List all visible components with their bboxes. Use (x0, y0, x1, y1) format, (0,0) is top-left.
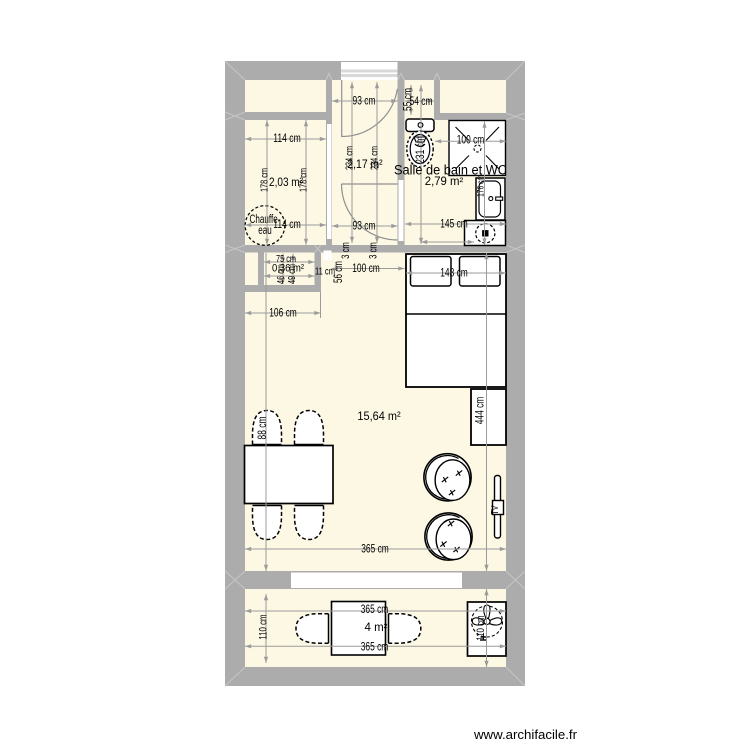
svg-text:2,03 m²: 2,03 m² (269, 175, 303, 189)
svg-text:444 cm: 444 cm (473, 397, 487, 425)
svg-text:145 cm: 145 cm (440, 217, 468, 231)
svg-text:176 cm: 176 cm (475, 175, 486, 197)
svg-text:114 cm: 114 cm (273, 217, 301, 231)
svg-text:231 cm: 231 cm (413, 136, 427, 164)
svg-text:365 cm: 365 cm (361, 602, 389, 616)
svg-text:4 m²: 4 m² (365, 622, 388, 634)
svg-text:110 cm: 110 cm (475, 615, 487, 640)
svg-text:148 cm: 148 cm (440, 266, 468, 280)
svg-text:2,79 m²: 2,79 m² (425, 176, 464, 188)
svg-text:2,17 m²: 2,17 m² (347, 157, 382, 171)
svg-text:110 cm: 110 cm (258, 614, 270, 639)
svg-text:88 cm: 88 cm (255, 417, 269, 440)
svg-text:eau: eau (258, 225, 271, 237)
svg-text:365 cm: 365 cm (361, 639, 389, 653)
svg-text:0,36 m²: 0,36 m² (272, 263, 304, 275)
svg-text:www.archifacile.fr: www.archifacile.fr (473, 727, 578, 742)
svg-text:106 cm: 106 cm (269, 306, 297, 320)
svg-text:56 cm: 56 cm (333, 261, 345, 283)
svg-text:TV: TV (490, 505, 501, 514)
svg-text:15,64 m²: 15,64 m² (357, 409, 400, 423)
svg-text:93 cm: 93 cm (353, 94, 376, 108)
svg-text:3 cm: 3 cm (368, 242, 380, 259)
svg-text:114 cm: 114 cm (273, 131, 301, 145)
svg-text:100 cm: 100 cm (457, 133, 485, 147)
svg-text:3 cm: 3 cm (340, 242, 352, 259)
svg-text:100 cm: 100 cm (352, 261, 380, 275)
svg-text:365 cm: 365 cm (361, 542, 389, 556)
svg-text:93 cm: 93 cm (353, 219, 376, 233)
